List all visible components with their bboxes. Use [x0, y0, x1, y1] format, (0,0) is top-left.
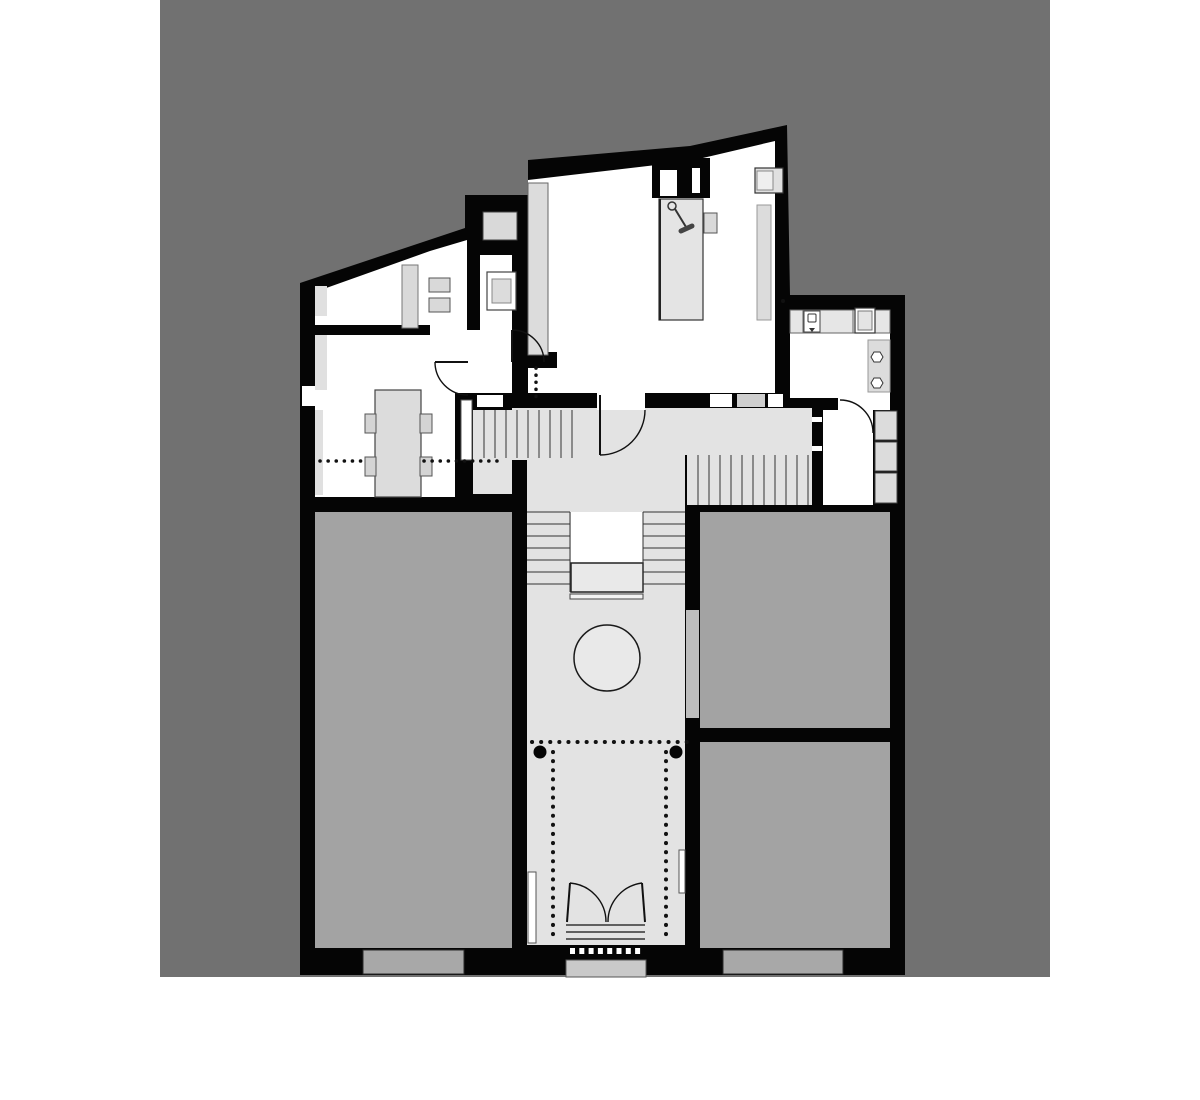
gray-room-right-upper	[700, 512, 890, 728]
cabinet	[402, 265, 418, 328]
hall-upper	[512, 408, 685, 460]
pantry-shelf	[875, 411, 897, 440]
nook-window	[660, 170, 677, 196]
wall-gap-2	[710, 394, 732, 407]
sink-basin-icon	[871, 352, 883, 362]
hall-niche	[686, 610, 699, 718]
chair	[365, 457, 376, 476]
wall-shelf	[429, 278, 450, 292]
door-opening	[597, 393, 645, 410]
floor-plan-drawing	[0, 0, 1200, 1100]
wall-reveal	[315, 286, 327, 316]
window-bottom-right	[723, 950, 843, 974]
hall-recess-left	[528, 872, 536, 943]
stove-inner	[858, 311, 872, 330]
wall-reveal	[315, 410, 323, 495]
nook-window	[692, 168, 700, 193]
window-bottom-left	[363, 950, 464, 974]
kitchen-door-bay	[838, 396, 890, 410]
round-table	[574, 625, 640, 691]
door-frame-mark-2	[812, 446, 822, 451]
floor-plan-page	[0, 0, 1200, 1100]
dining-table	[375, 390, 421, 497]
gray-room-right-lower	[700, 742, 890, 948]
hall-bay	[473, 458, 512, 494]
hall-recess-right	[679, 850, 685, 893]
radiator-inner	[757, 171, 773, 190]
wall-counter	[757, 205, 771, 320]
floor-dot	[781, 299, 785, 303]
wall-notch-left	[302, 386, 316, 406]
entry-step	[566, 960, 646, 977]
wall-gap-4	[768, 394, 783, 407]
sideboard-inner	[492, 279, 511, 303]
sink-basin-icon	[871, 378, 883, 388]
stairwell-void	[571, 512, 643, 563]
gray-room-left	[315, 512, 512, 948]
shaft-box	[483, 212, 517, 240]
borrowed-light-window	[461, 400, 472, 460]
wall-gap-3	[737, 394, 765, 407]
pantry-shelf	[875, 473, 897, 503]
wall-gap-1	[477, 395, 503, 407]
column	[534, 746, 547, 759]
nightstand	[704, 213, 717, 233]
wardrobe	[528, 183, 548, 355]
wall-reveal	[315, 335, 327, 390]
column	[670, 746, 683, 759]
stair-run-right-floor	[687, 455, 812, 505]
chair	[420, 414, 432, 433]
chair	[420, 457, 432, 476]
living-bedroom	[528, 141, 775, 393]
stair-landing	[571, 563, 643, 592]
stair-landing-edge	[570, 594, 643, 599]
wall-shelf	[429, 298, 450, 312]
pantry-room	[823, 410, 873, 505]
pantry-shelf	[875, 442, 897, 471]
door-frame-mark-1	[812, 417, 822, 422]
chair	[365, 414, 376, 433]
hall-right	[685, 408, 812, 455]
